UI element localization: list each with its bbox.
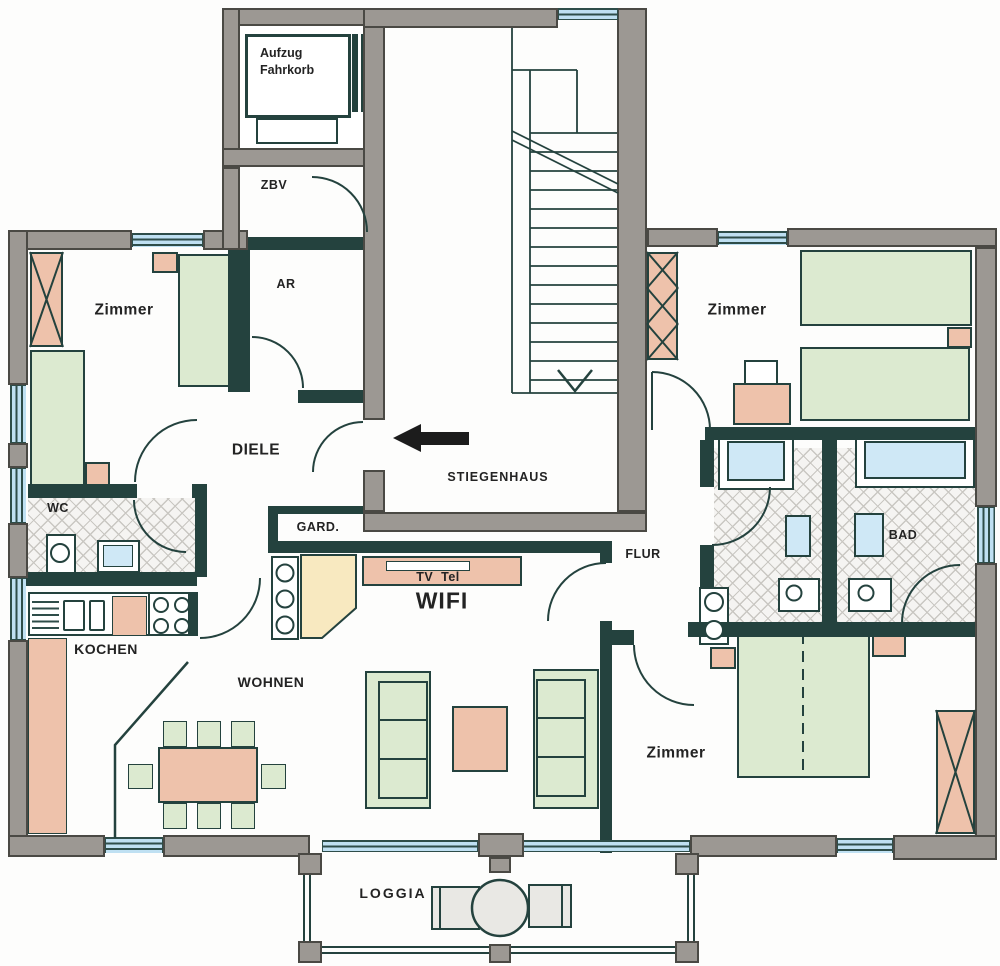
sink-basin xyxy=(103,545,133,567)
loggia-post xyxy=(298,941,322,963)
desk xyxy=(733,383,791,425)
door-arc xyxy=(313,422,363,472)
wall xyxy=(705,427,975,440)
nightstand xyxy=(947,327,972,348)
chair xyxy=(261,764,286,789)
loggia-post xyxy=(478,833,524,857)
window xyxy=(977,507,995,563)
wardrobe xyxy=(936,710,975,834)
wall xyxy=(363,8,558,28)
chair xyxy=(231,721,255,747)
stairs-down-arrow-icon xyxy=(558,370,592,391)
wall xyxy=(8,835,105,857)
shower xyxy=(854,513,884,557)
wall xyxy=(268,541,612,553)
sofa-seat xyxy=(536,679,586,719)
door-arc xyxy=(312,177,367,232)
elevator-sill xyxy=(256,118,338,144)
sofa-seat xyxy=(536,717,586,758)
room-label-gard: GARD. xyxy=(297,521,340,534)
wall xyxy=(222,8,385,26)
lounge-chair xyxy=(431,886,480,930)
stairs xyxy=(512,28,618,393)
aufzug-line2: Fahrkorb xyxy=(260,62,314,79)
wall xyxy=(188,592,198,636)
wall xyxy=(600,621,612,853)
aufzug-line1: Aufzug xyxy=(260,45,314,62)
wall xyxy=(8,523,28,578)
window xyxy=(10,578,26,640)
window xyxy=(10,468,26,523)
wall xyxy=(787,228,997,247)
wall xyxy=(363,8,385,420)
wall xyxy=(363,470,385,512)
window xyxy=(322,840,478,852)
wall xyxy=(893,835,997,860)
floor-plan: Aufzug Fahrkorb ZBV AR Zimmer Zimmer DIE… xyxy=(0,0,1000,966)
window xyxy=(718,231,787,245)
room-label-zimmer-nw: Zimmer xyxy=(95,302,154,318)
chair xyxy=(197,803,221,829)
wall xyxy=(222,167,240,250)
wall xyxy=(8,640,28,857)
sofa-seat xyxy=(378,758,428,799)
bathtub xyxy=(864,441,966,479)
wall xyxy=(975,563,997,860)
wall xyxy=(822,440,837,625)
window xyxy=(132,233,203,247)
room-label-bad: BAD xyxy=(889,529,918,542)
window xyxy=(837,838,893,853)
toilet xyxy=(46,534,76,576)
room-label-loggia: LOGGIA xyxy=(359,886,426,900)
room-label-zimmer-se: Zimmer xyxy=(647,745,706,761)
door-arc xyxy=(252,337,303,388)
room-label-kochen: KOCHEN xyxy=(74,642,138,656)
wall xyxy=(612,630,634,645)
wall xyxy=(222,148,385,167)
sideboard xyxy=(28,638,67,834)
loggia-post xyxy=(675,941,699,963)
room-label-zimmer-ne: Zimmer xyxy=(708,302,767,318)
room-label-flur: FLUR xyxy=(625,548,660,561)
wardrobe xyxy=(30,252,63,347)
elevator-rail xyxy=(352,34,358,112)
wall xyxy=(25,572,197,586)
door-arc xyxy=(652,372,710,430)
sofa-seat xyxy=(378,681,428,721)
wall xyxy=(617,8,647,512)
room-label-aufzug: Aufzug Fahrkorb xyxy=(260,45,314,79)
wall xyxy=(647,228,718,247)
wall xyxy=(268,506,365,514)
corner-desk xyxy=(301,555,356,638)
annotation-tv-tel: TV Tel xyxy=(416,571,460,584)
chair xyxy=(231,803,255,829)
room-label-wc: WC xyxy=(47,502,69,515)
double-bed xyxy=(737,630,870,778)
loggia-post xyxy=(489,857,511,873)
loggia-post xyxy=(675,853,699,875)
dish-rack xyxy=(32,601,59,630)
window xyxy=(10,385,26,443)
chair xyxy=(163,721,187,747)
wall xyxy=(363,512,647,532)
door-arc xyxy=(135,420,197,482)
shower xyxy=(785,515,811,557)
kitchen-sink xyxy=(63,600,85,631)
wall xyxy=(688,622,975,637)
wall xyxy=(8,230,28,385)
room-label-stiegenhaus: STIEGENHAUS xyxy=(447,471,548,484)
window xyxy=(105,837,163,853)
door-arc xyxy=(548,563,606,621)
wall xyxy=(975,247,997,507)
loggia-post xyxy=(489,944,511,963)
window xyxy=(523,840,690,852)
loggia-table xyxy=(472,880,528,936)
wall xyxy=(222,8,240,167)
chair xyxy=(197,721,221,747)
wall xyxy=(690,835,837,857)
wall xyxy=(600,553,612,563)
room-label-diele: DIELE xyxy=(232,442,280,458)
room-label-ar: AR xyxy=(276,278,295,291)
sink xyxy=(848,578,892,612)
counter-block xyxy=(112,596,147,636)
nightstand xyxy=(710,647,736,669)
coffee-table xyxy=(452,706,508,772)
shelf xyxy=(271,556,299,640)
door-arc xyxy=(200,578,260,638)
door-arc xyxy=(634,645,694,705)
wall xyxy=(700,440,714,487)
sofa-seat xyxy=(536,756,586,797)
chair xyxy=(163,803,187,829)
window xyxy=(558,8,618,20)
sink xyxy=(778,578,820,612)
bed xyxy=(800,250,972,326)
bathtub xyxy=(727,441,785,481)
nightstand xyxy=(152,252,178,273)
loggia-post xyxy=(298,853,322,875)
wall xyxy=(28,484,137,498)
wall xyxy=(245,237,363,250)
dining-table xyxy=(158,747,258,803)
entrance-arrow-icon xyxy=(393,424,469,452)
bed xyxy=(30,350,85,487)
wall xyxy=(195,497,207,577)
sofa-seat xyxy=(378,719,428,760)
room-label-wohnen: WOHNEN xyxy=(238,675,305,689)
bed xyxy=(800,347,970,421)
chair xyxy=(128,764,153,789)
kitchen-sink xyxy=(89,600,105,631)
lounge-chair xyxy=(528,884,572,928)
wall xyxy=(228,247,250,392)
room-label-zbv: ZBV xyxy=(261,179,288,192)
wall xyxy=(163,835,310,857)
wall xyxy=(192,484,207,498)
wall xyxy=(8,443,28,468)
wall xyxy=(700,545,714,587)
wardrobe xyxy=(647,252,678,360)
annotation-wifi: WIFI xyxy=(416,590,469,613)
